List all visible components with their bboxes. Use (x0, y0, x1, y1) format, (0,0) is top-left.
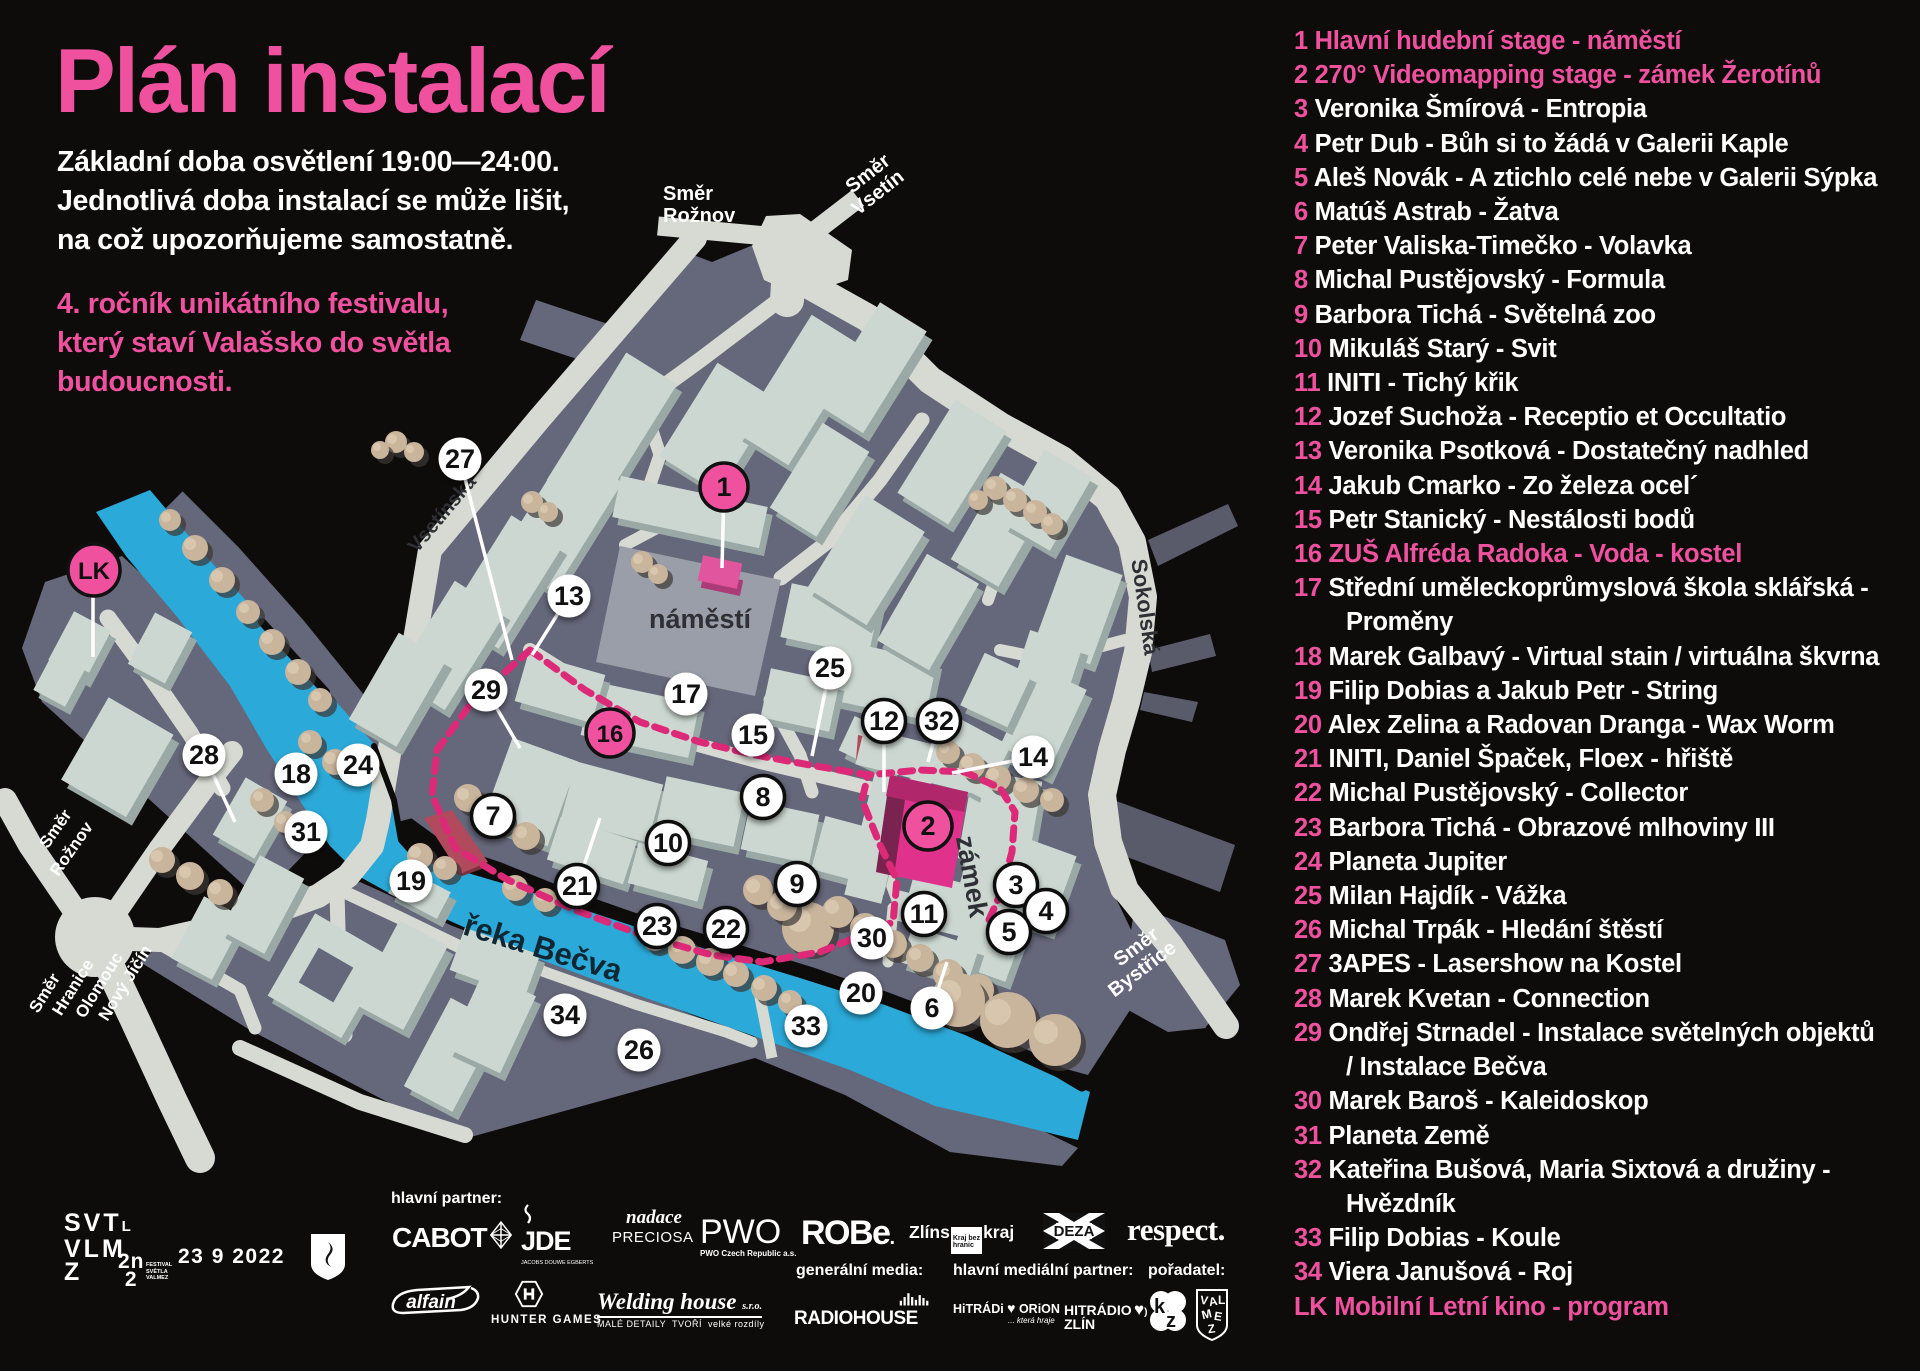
svg-text:33: 33 (791, 1011, 821, 1041)
svg-text:5: 5 (1001, 917, 1016, 947)
svg-text:1: 1 (716, 472, 731, 502)
svg-text:31: 31 (291, 817, 321, 847)
svg-text:29: 29 (471, 675, 501, 705)
svg-text:20: 20 (846, 978, 876, 1008)
svg-text:17: 17 (671, 679, 701, 709)
svg-text:L: L (1218, 1293, 1225, 1307)
svg-text:16: 16 (597, 721, 624, 748)
svg-text:26: 26 (624, 1035, 654, 1065)
svg-text:23: 23 (642, 911, 672, 941)
svg-text:k: k (1154, 1296, 1166, 1318)
svg-text:Rožnov: Rožnov (663, 205, 736, 227)
svg-text:15: 15 (738, 720, 768, 750)
svg-text:7: 7 (485, 801, 500, 831)
svg-text:32: 32 (924, 706, 954, 736)
svg-text:4: 4 (1038, 896, 1053, 926)
svg-text:z: z (1166, 1310, 1176, 1332)
svg-text:25: 25 (815, 653, 845, 683)
svg-text:náměstí: náměstí (649, 604, 753, 634)
svg-text:28: 28 (189, 740, 219, 770)
svg-text:11: 11 (910, 899, 939, 929)
svg-text:27: 27 (445, 444, 475, 474)
svg-text:Z: Z (1207, 1321, 1216, 1336)
svg-text:Směr: Směr (663, 183, 713, 205)
svg-text:19: 19 (396, 866, 426, 896)
svg-text:2: 2 (920, 811, 935, 841)
svg-text:6: 6 (924, 993, 939, 1023)
svg-text:22: 22 (711, 914, 741, 944)
svg-text:14: 14 (1018, 742, 1048, 772)
svg-text:30: 30 (857, 923, 887, 953)
svg-text:24: 24 (343, 750, 373, 780)
svg-text:12: 12 (869, 706, 899, 736)
svg-text:8: 8 (755, 782, 770, 812)
svg-text:10: 10 (653, 828, 683, 858)
svg-text:3: 3 (1008, 870, 1023, 900)
svg-text:alfain: alfain (406, 1292, 456, 1313)
svg-text:13: 13 (554, 581, 584, 611)
svg-text:LK: LK (78, 558, 111, 585)
svg-text:18: 18 (281, 759, 311, 789)
svg-text:DEZA: DEZA (1054, 1223, 1095, 1240)
svg-text:21: 21 (562, 871, 592, 901)
svg-text:34: 34 (550, 1000, 580, 1030)
svg-text:E: E (1213, 1309, 1223, 1324)
svg-text:9: 9 (789, 869, 804, 899)
